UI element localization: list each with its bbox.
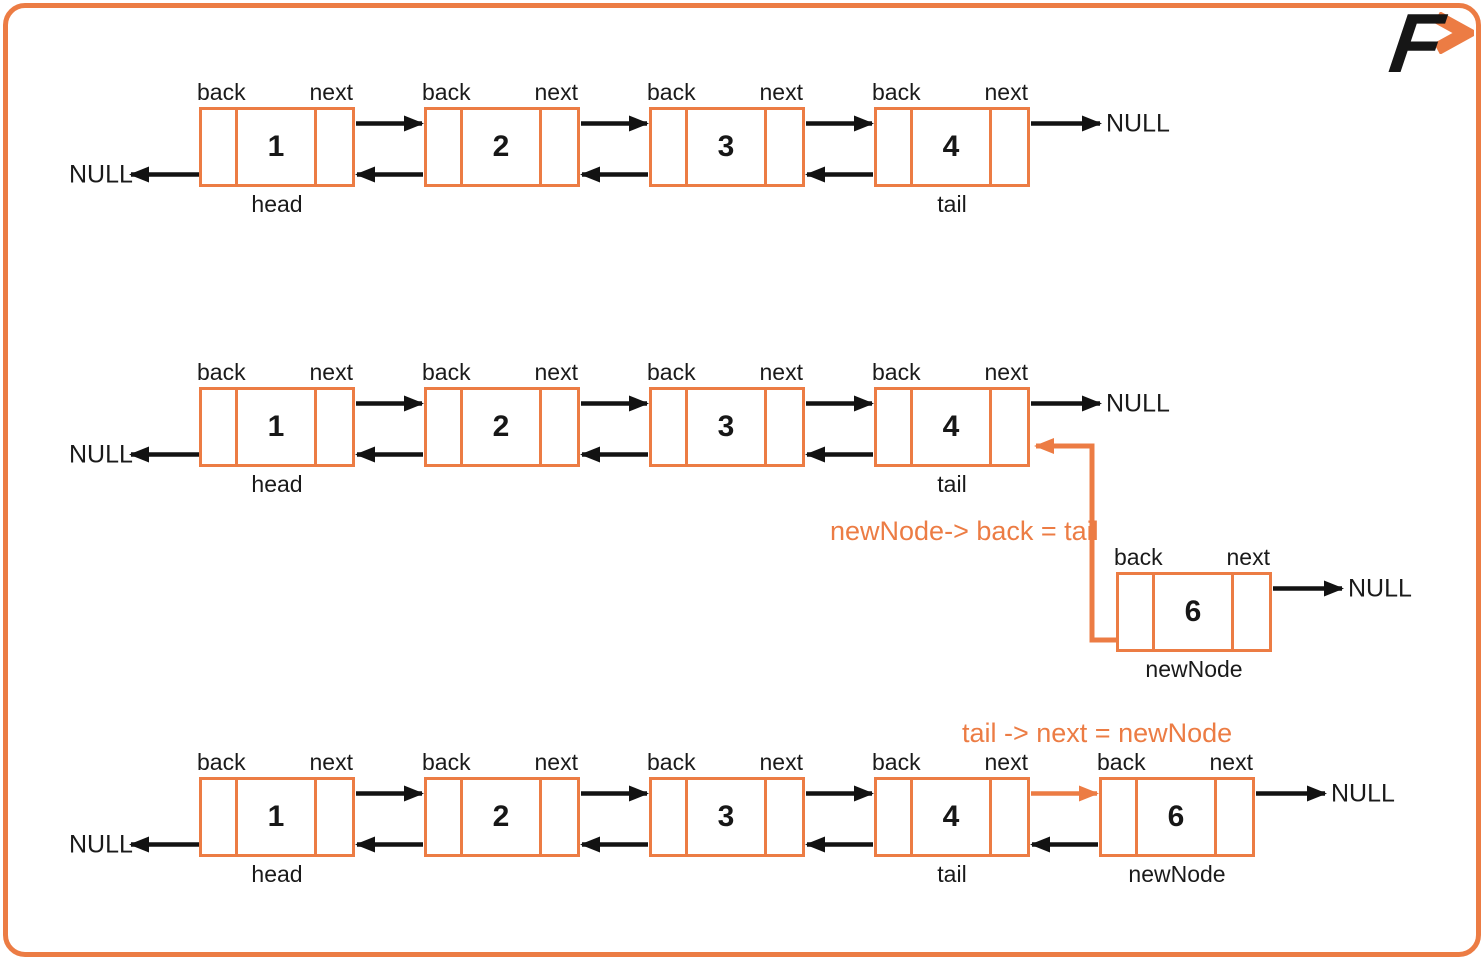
node-role-label: tail: [874, 861, 1030, 887]
node-role-label: newNode: [1116, 656, 1272, 682]
back-pointer-cell: [652, 390, 688, 464]
next-pointer-cell: [314, 780, 352, 854]
brand-logo: F: [1391, 8, 1474, 79]
next-pointer-cell: [539, 390, 577, 464]
next-pointer-cell: [764, 390, 802, 464]
list-node: 1: [199, 107, 355, 187]
back-pointer-label: back: [872, 79, 921, 105]
list-node: 2: [424, 387, 580, 467]
next-pointer-cell: [989, 780, 1027, 854]
null-label: NULL: [1348, 576, 1412, 601]
list-node: 4: [874, 387, 1030, 467]
node-role-label: head: [199, 191, 355, 217]
list-node: 3: [649, 387, 805, 467]
back-pointer-label: back: [422, 79, 471, 105]
back-pointer-cell: [877, 110, 913, 184]
next-pointer-label: next: [506, 359, 578, 385]
back-pointer-label: back: [872, 749, 921, 775]
node-role-label: newNode: [1099, 861, 1255, 887]
node-value: 1: [238, 390, 314, 464]
list-node: 2: [424, 777, 580, 857]
annotation-assign-back: newNode-> back = tail: [830, 517, 1099, 547]
back-pointer-label: back: [1097, 749, 1146, 775]
next-pointer-label: next: [731, 79, 803, 105]
next-pointer-label: next: [281, 749, 353, 775]
next-pointer-cell: [314, 390, 352, 464]
next-pointer-cell: [539, 780, 577, 854]
next-pointer-label: next: [731, 359, 803, 385]
list-node: 1: [199, 387, 355, 467]
back-pointer-label: back: [647, 79, 696, 105]
next-pointer-label: next: [956, 359, 1028, 385]
next-pointer-label: next: [506, 749, 578, 775]
back-pointer-label: back: [197, 79, 246, 105]
next-pointer-cell: [1231, 575, 1269, 649]
node-value: 3: [688, 780, 764, 854]
back-pointer-cell: [1102, 780, 1138, 854]
node-value: 3: [688, 110, 764, 184]
list-node: 2: [424, 107, 580, 187]
null-label: NULL: [1106, 391, 1170, 416]
next-pointer-label: next: [506, 79, 578, 105]
list-node: 3: [649, 777, 805, 857]
list-node: 3: [649, 107, 805, 187]
null-label: NULL: [69, 832, 127, 857]
next-pointer-label: next: [1181, 749, 1253, 775]
next-pointer-cell: [989, 110, 1027, 184]
next-pointer-cell: [989, 390, 1027, 464]
back-pointer-cell: [427, 390, 463, 464]
null-label: NULL: [69, 162, 127, 187]
next-pointer-label: next: [281, 79, 353, 105]
next-pointer-label: next: [281, 359, 353, 385]
list-node: 6: [1099, 777, 1255, 857]
back-pointer-label: back: [422, 359, 471, 385]
node-value: 6: [1155, 575, 1231, 649]
back-pointer-cell: [1119, 575, 1155, 649]
node-value: 1: [238, 110, 314, 184]
node-role-label: head: [199, 861, 355, 887]
back-pointer-cell: [877, 780, 913, 854]
back-pointer-label: back: [1114, 544, 1163, 570]
next-pointer-label: next: [956, 79, 1028, 105]
back-pointer-label: back: [197, 749, 246, 775]
back-pointer-cell: [427, 110, 463, 184]
null-label: NULL: [1331, 781, 1395, 806]
list-node: 1: [199, 777, 355, 857]
node-value: 2: [463, 780, 539, 854]
list-node: 4: [874, 107, 1030, 187]
logo-letter-f: F: [1386, 8, 1447, 79]
next-pointer-cell: [764, 110, 802, 184]
back-pointer-cell: [202, 780, 238, 854]
node-role-label: tail: [874, 471, 1030, 497]
null-label: NULL: [1106, 111, 1170, 136]
node-value: 4: [913, 390, 989, 464]
node-role-label: head: [199, 471, 355, 497]
annotation-assign-next: tail -> next = newNode: [962, 719, 1232, 749]
null-label: NULL: [69, 442, 127, 467]
next-pointer-label: next: [1198, 544, 1270, 570]
next-pointer-cell: [539, 110, 577, 184]
back-pointer-label: back: [422, 749, 471, 775]
node-value: 2: [463, 390, 539, 464]
back-pointer-cell: [652, 110, 688, 184]
list-node: 6: [1116, 572, 1272, 652]
list-node: 4: [874, 777, 1030, 857]
next-pointer-cell: [764, 780, 802, 854]
back-pointer-label: back: [647, 359, 696, 385]
back-pointer-cell: [652, 780, 688, 854]
next-pointer-cell: [1214, 780, 1252, 854]
back-pointer-cell: [427, 780, 463, 854]
back-pointer-cell: [877, 390, 913, 464]
next-pointer-label: next: [731, 749, 803, 775]
back-pointer-cell: [202, 390, 238, 464]
next-pointer-cell: [314, 110, 352, 184]
node-value: 6: [1138, 780, 1214, 854]
node-role-label: tail: [874, 191, 1030, 217]
node-value: 1: [238, 780, 314, 854]
node-value: 3: [688, 390, 764, 464]
back-pointer-label: back: [197, 359, 246, 385]
diagram-canvas: 1backnexthead2backnext3backnext4backnext…: [0, 0, 1484, 960]
node-value: 2: [463, 110, 539, 184]
back-pointer-label: back: [647, 749, 696, 775]
back-pointer-label: back: [872, 359, 921, 385]
node-value: 4: [913, 110, 989, 184]
node-value: 4: [913, 780, 989, 854]
next-pointer-label: next: [956, 749, 1028, 775]
back-pointer-cell: [202, 110, 238, 184]
